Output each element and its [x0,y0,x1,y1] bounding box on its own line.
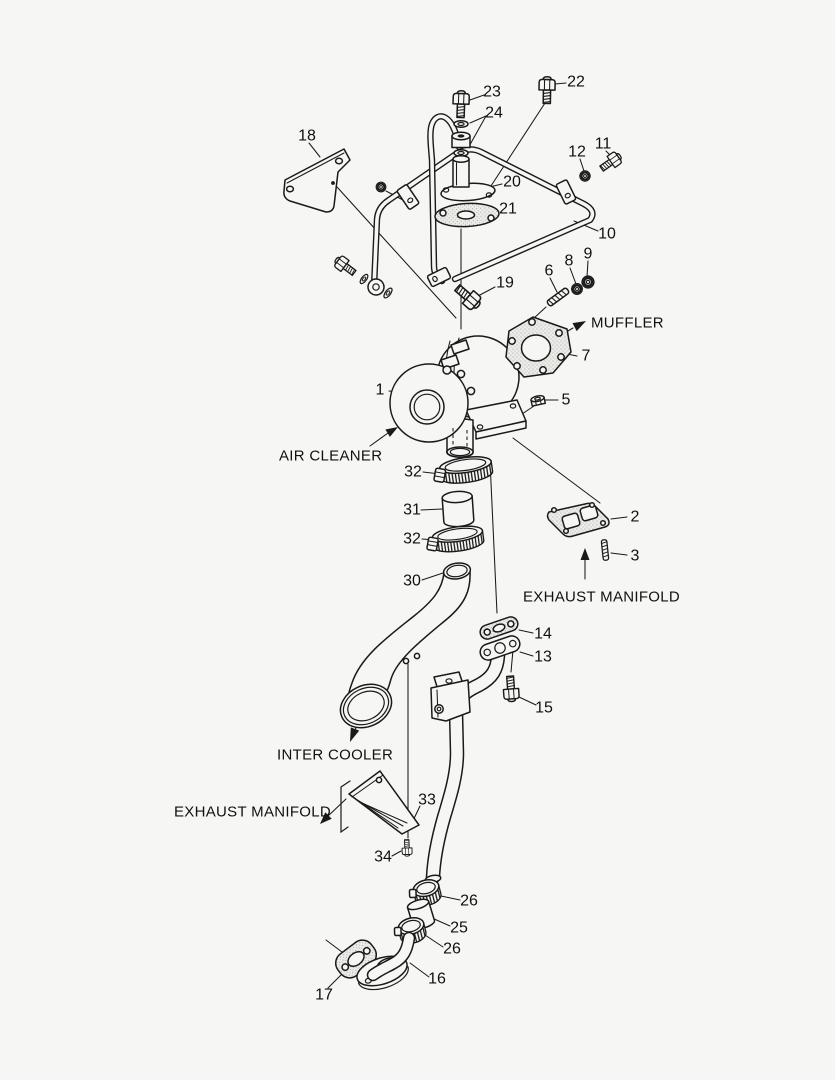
label-exhaust-manifold-upper: EXHAUST MANIFOLD [523,589,680,606]
part-12-washer [580,171,590,181]
callout-34-26: 34 [374,849,392,866]
callout-32-16: 32 [404,464,422,481]
exhaust-manifold-up-arrow-icon [581,548,590,560]
callout-24-2: 24 [485,105,503,122]
parts-diagram: Exploded parts diagram of a turbocharger… [0,0,835,1080]
part-34-bolt [402,839,412,856]
air-cleaner-arrow-icon [385,427,398,437]
part-21-gasket [434,202,499,228]
muffler-arrow-icon [573,321,587,331]
part-5-nut [530,395,545,406]
part-3-stud [601,540,609,561]
pipe-clip-right [556,179,576,204]
part-8-washer [572,284,583,295]
part-9-nut [582,276,594,288]
callout-1-14: 1 [376,382,385,399]
callout-32-18: 32 [403,531,421,548]
part-15-bolt [503,676,520,702]
callout-22-1: 22 [567,74,585,91]
callout-2-20: 2 [631,509,640,526]
part-23-bolt [453,91,470,118]
callout-31-17: 31 [403,502,421,519]
callout-16-30: 16 [428,971,446,988]
label-exhaust-manifold-lower: EXHAUST MANIFOLD [174,804,331,821]
inter-cooler-arrow-icon [350,727,359,742]
page: Exploded parts diagram of a turbocharger… [0,0,835,1080]
callout-26-27: 26 [460,893,478,910]
callout-20-6: 20 [503,174,521,191]
label-air-cleaner: AIR CLEANER [279,448,382,465]
callout-5-15: 5 [562,392,571,409]
pipe-clip-bottom [427,267,451,287]
part-nut-clip [376,182,386,192]
part-2-manifold-gasket [548,503,610,537]
callout-7-13: 7 [582,348,591,365]
part-11-bolt [598,150,624,174]
part-31-hose [442,490,474,527]
part-22-bolt [539,77,555,104]
callout-14-22: 14 [534,626,552,643]
pipe-clamp-bracket [431,672,470,721]
part-7-muffler-gasket [506,317,571,377]
part-33-bracket [341,771,419,834]
part-18-bracket [284,149,350,212]
label-inter-cooler: INTER COOLER [277,747,393,764]
part-24-washer-a [454,121,468,127]
label-muffler: MUFFLER [591,315,664,332]
callout-9-9: 9 [584,246,593,263]
pipe-clip-left [397,184,420,210]
part-32-clamp-upper [431,454,494,487]
callout-15-24: 15 [535,700,553,717]
callout-3-21: 3 [631,548,640,565]
callout-11-4: 11 [595,136,612,153]
callout-10-8: 10 [598,226,616,243]
callout-13-23: 13 [534,649,552,666]
callout-18-3: 18 [298,128,316,145]
callout-21-7: 21 [499,201,517,218]
callout-23-0: 23 [483,84,501,101]
callout-30-19: 30 [403,573,421,590]
part-19-bolt [452,281,484,312]
banjo-bolt-left [332,254,394,299]
callout-19-12: 19 [496,275,514,292]
callout-26-29: 26 [443,941,461,958]
part-6-stud [546,287,569,306]
callout-8-10: 8 [565,253,574,270]
callout-25-28: 25 [450,920,468,937]
callout-12-5: 12 [568,144,586,161]
callout-33-25: 33 [418,792,436,809]
callout-6-11: 6 [545,263,554,280]
banjo-eye-top [452,132,470,147]
callout-17-31: 17 [315,987,333,1004]
part-32-clamp-lower [424,523,485,555]
